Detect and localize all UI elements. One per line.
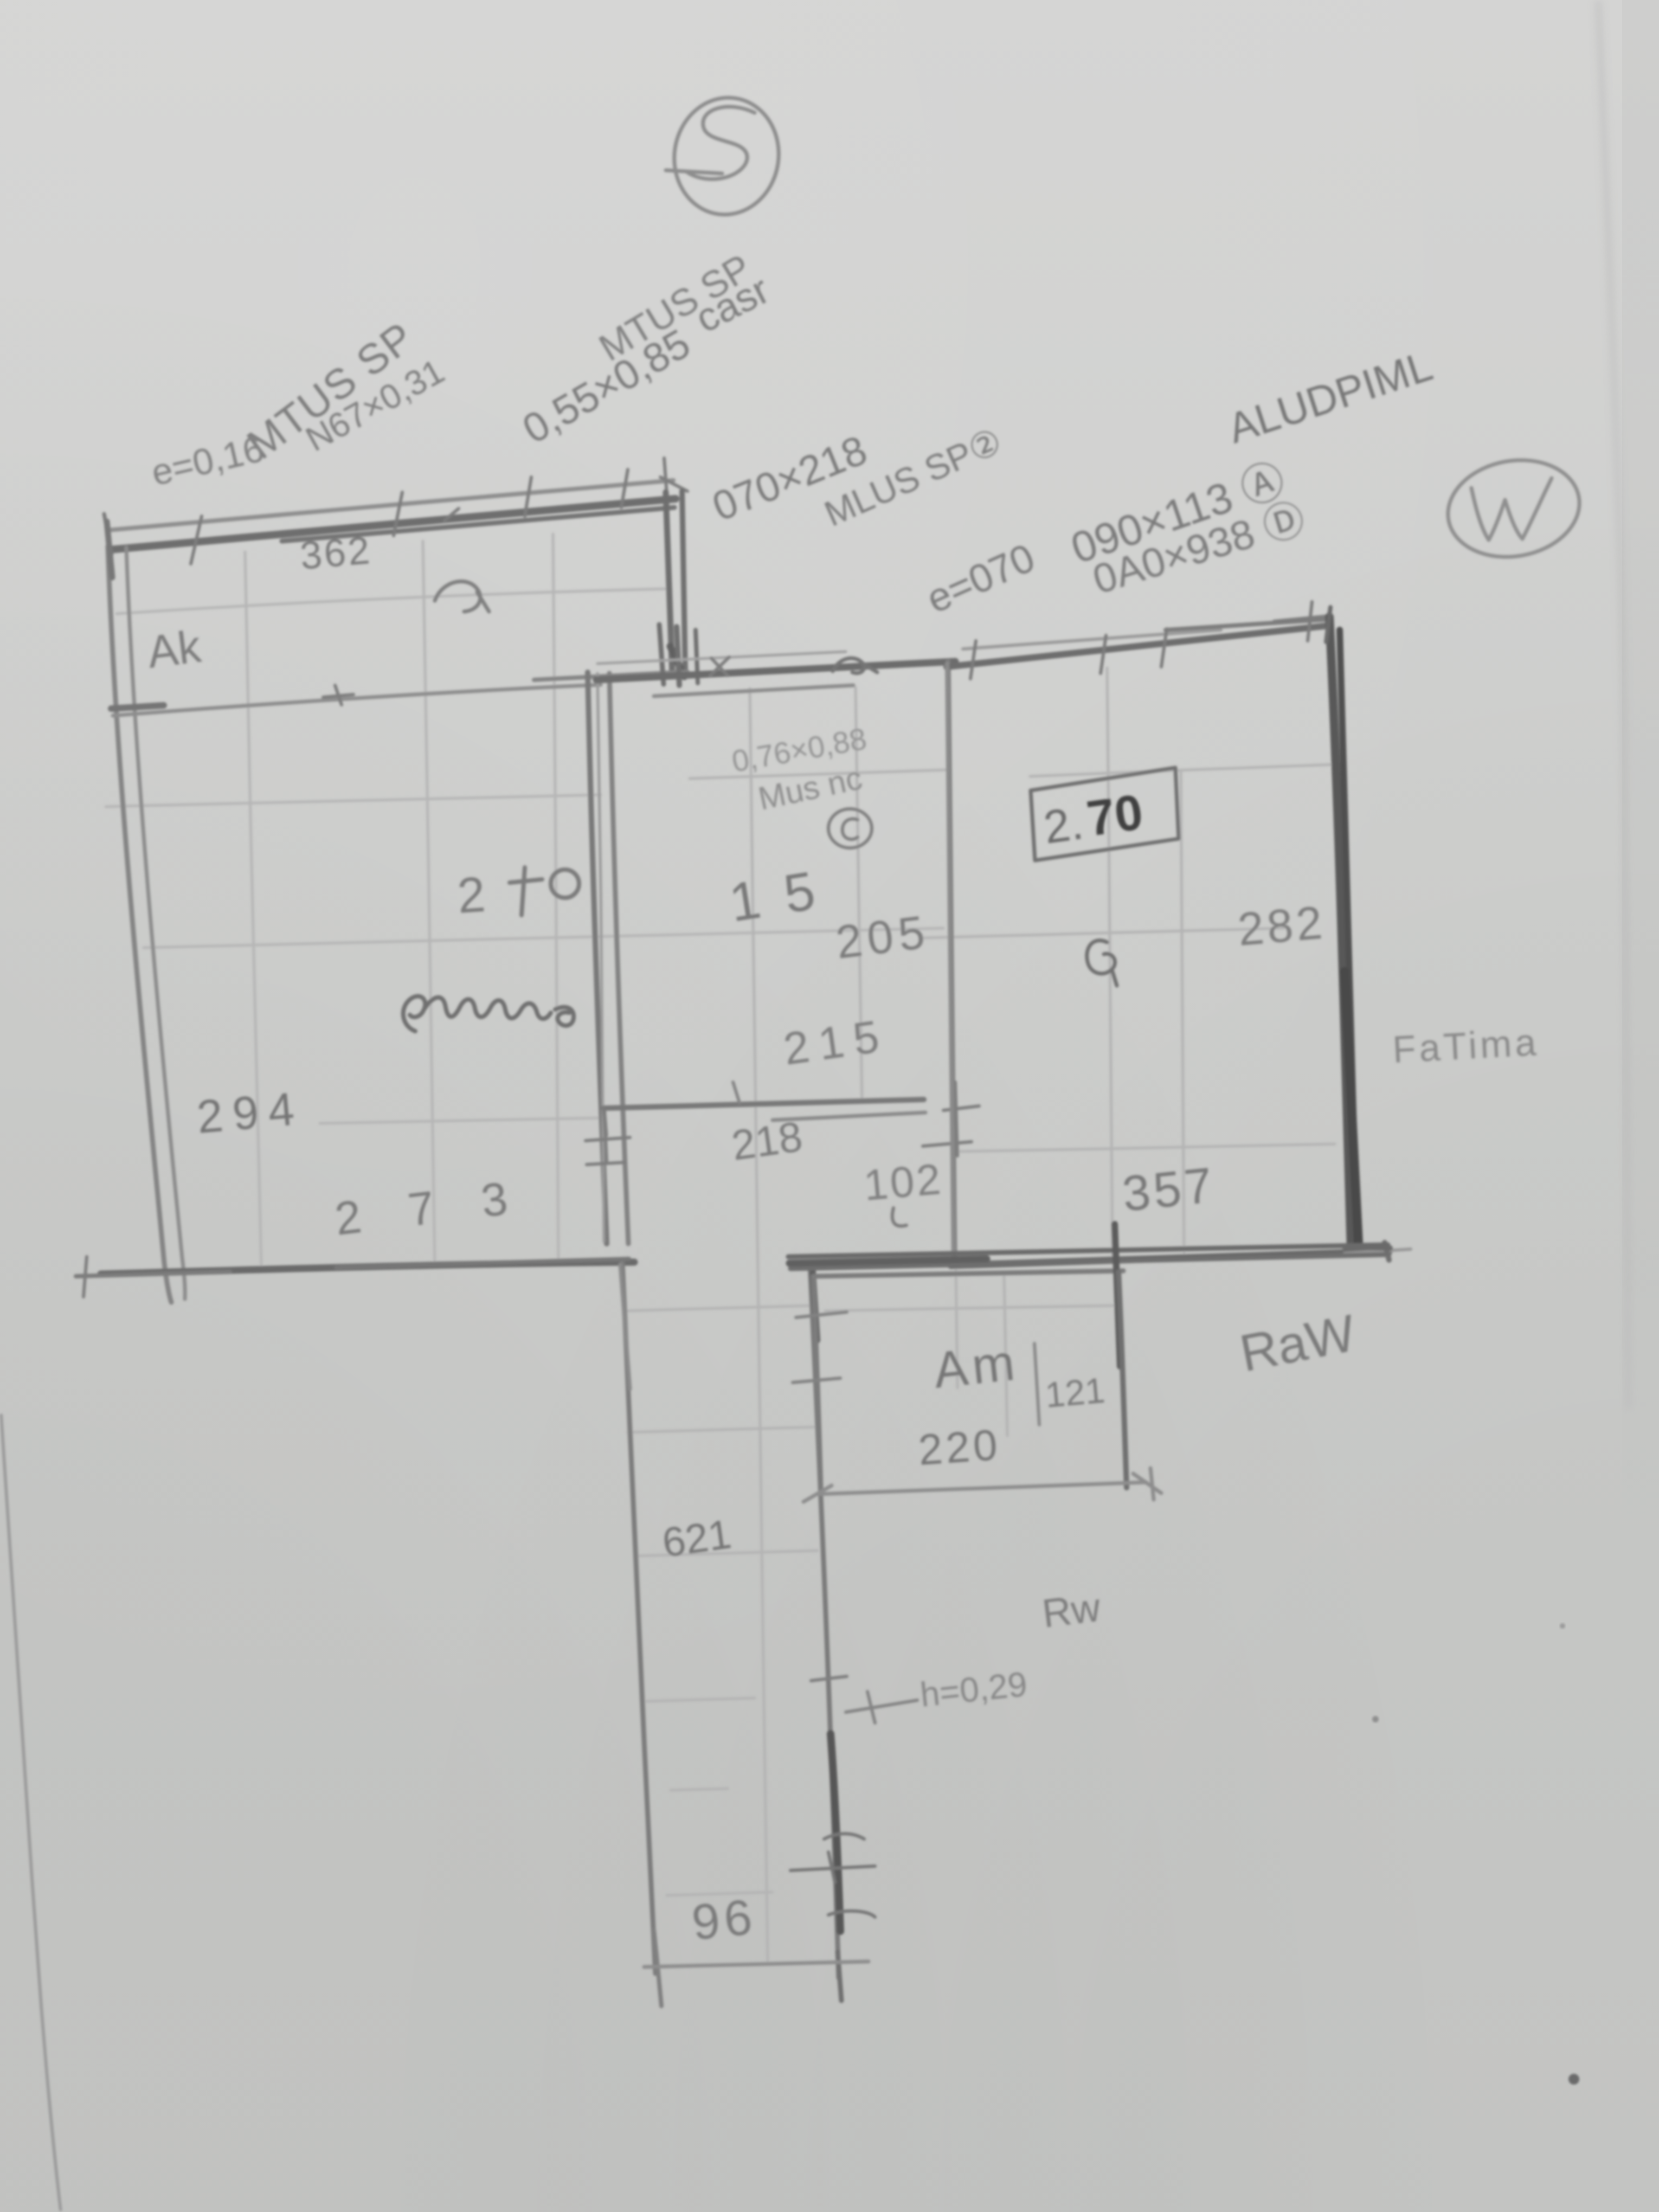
svg-text:621: 621 <box>660 1511 734 1566</box>
svg-text:FaTima: FaTima <box>1392 1021 1540 1071</box>
svg-text:Am: Am <box>931 1333 1021 1399</box>
svg-text:357: 357 <box>1120 1158 1218 1222</box>
svg-text:362: 362 <box>298 529 374 578</box>
svg-text:294: 294 <box>195 1082 306 1143</box>
svg-text:2: 2 <box>455 866 492 924</box>
svg-text:121: 121 <box>1044 1370 1107 1415</box>
svg-text:96: 96 <box>689 1889 758 1951</box>
svg-text:70: 70 <box>1084 785 1147 847</box>
svg-text:220: 220 <box>917 1420 1002 1474</box>
svg-text:Ak: Ak <box>145 620 204 677</box>
svg-text:218: 218 <box>729 1113 805 1169</box>
svg-text:102: 102 <box>862 1155 945 1210</box>
svg-text:2.: 2. <box>1040 797 1086 854</box>
svg-text:Rw: Rw <box>1040 1584 1103 1636</box>
svg-text:282: 282 <box>1236 896 1327 956</box>
